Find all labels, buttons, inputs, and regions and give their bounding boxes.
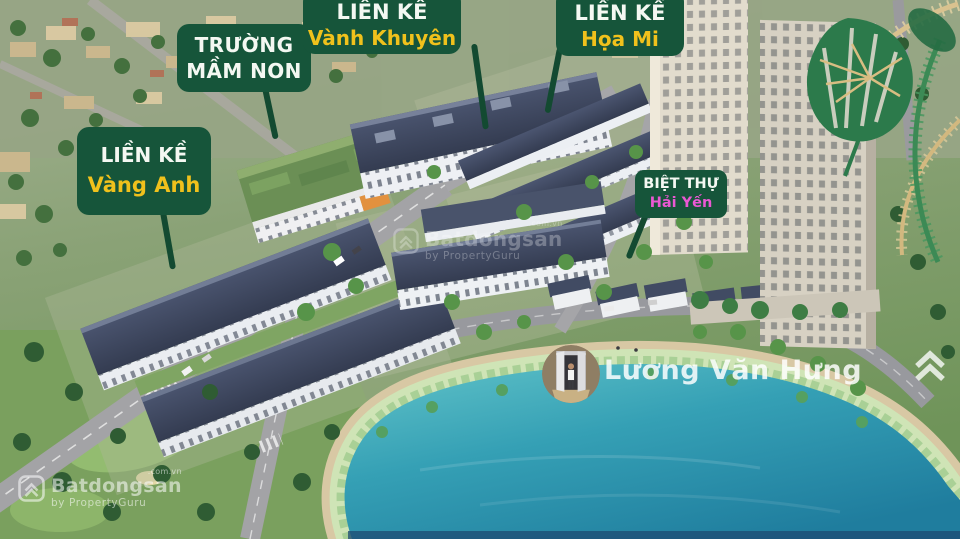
callout-lien-ke-vang-anh: LIỀN KỀ Vàng Anh xyxy=(77,127,211,215)
brand-byline-text: by PropertyGuru xyxy=(51,498,182,509)
watermark-brand-bottom-left: .com.vn Batdongsan by PropertyGuru xyxy=(18,468,182,509)
brand-logo-icon xyxy=(393,228,419,254)
callout-text: LIỀN KỀ xyxy=(77,144,211,167)
callout-text: TRƯỜNG xyxy=(177,34,311,57)
callout-text: Hải Yến xyxy=(635,195,727,212)
callout-text: BIỆT THỰ xyxy=(635,176,727,193)
callout-truong-mam-non: TRƯỜNG MẦM NON xyxy=(177,24,311,92)
callout-text: Vành Khuyên xyxy=(303,27,461,50)
callout-lien-ke-vanh-khuyen: LIỀN KỀ Vành Khuyên xyxy=(303,0,461,54)
brand-chevrons-icon xyxy=(912,348,948,390)
brand-logo-icon xyxy=(18,475,45,502)
brand-name-text: Batdongsan xyxy=(51,477,182,496)
callout-text: LIỀN KỀ xyxy=(556,1,684,25)
lake xyxy=(345,364,960,539)
callout-biet-thu-hai-yen: BIỆT THỰ Hải Yến xyxy=(635,170,727,218)
callout-text: Vàng Anh xyxy=(77,173,211,197)
agent-photo-avatar xyxy=(542,345,600,403)
callout-text: LIỀN KỀ xyxy=(303,0,461,24)
aerial-masterplan-photo: TRƯỜNG MẦM NON LIỀN KỀ Vành Khuyên LIỀN … xyxy=(0,0,960,539)
agent-name-watermark: Lương Văn Hưng xyxy=(604,355,862,386)
callout-text: MẦM NON xyxy=(177,60,311,83)
watermark-brand-center: .com.vn Batdongsan by PropertyGuru xyxy=(393,220,563,262)
brand-byline-text: by PropertyGuru xyxy=(425,251,563,262)
callout-text: Họa Mi xyxy=(556,28,684,51)
brand-name-text: Batdongsan xyxy=(425,229,563,249)
callout-lien-ke-hoa-mi: LIỀN KỀ Họa Mi xyxy=(556,0,684,56)
